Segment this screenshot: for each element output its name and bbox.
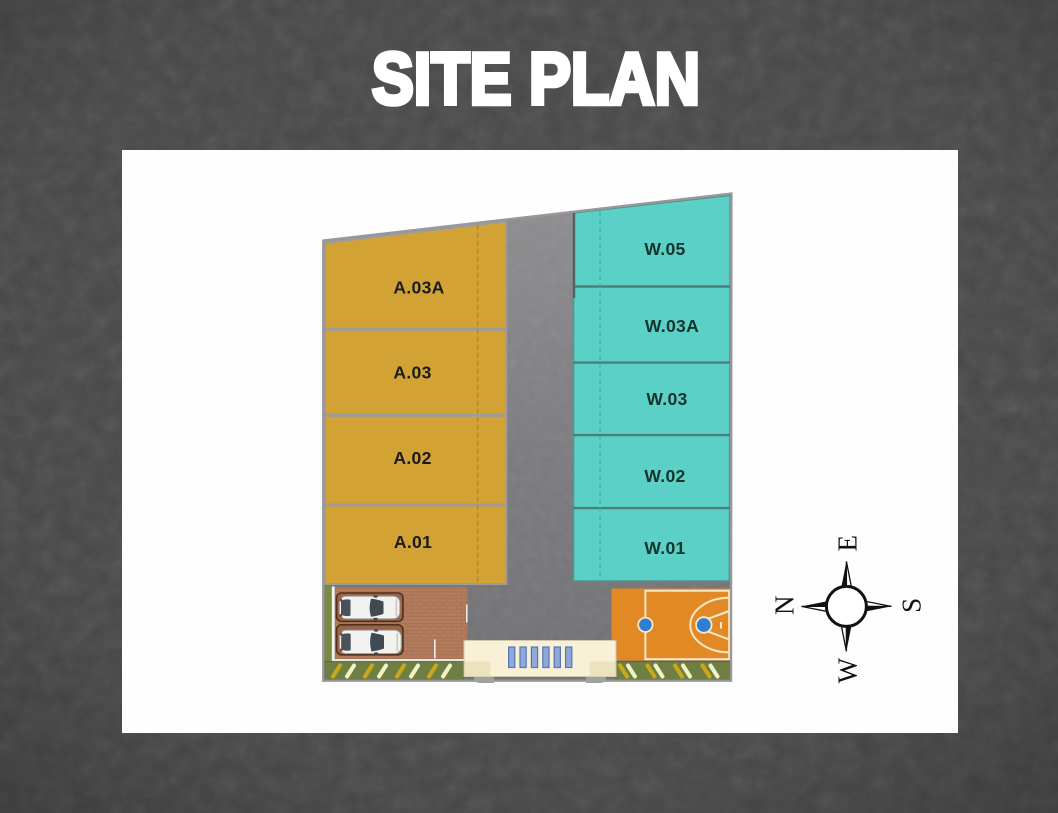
svg-text:A.03A: A.03A: [393, 278, 444, 298]
svg-text:A.02: A.02: [393, 448, 431, 468]
svg-text:W.01: W.01: [644, 538, 685, 558]
svg-text:W.02: W.02: [644, 466, 685, 486]
svg-text:A.03: A.03: [393, 363, 431, 383]
svg-text:W.05: W.05: [644, 239, 685, 259]
svg-text:W.03A: W.03A: [645, 316, 699, 336]
svg-text:W: W: [832, 657, 862, 683]
svg-text:E: E: [832, 535, 862, 552]
svg-text:N: N: [769, 596, 799, 616]
svg-text:A.01: A.01: [394, 532, 432, 552]
svg-text:W.03: W.03: [646, 389, 687, 409]
svg-text:S: S: [897, 598, 927, 613]
